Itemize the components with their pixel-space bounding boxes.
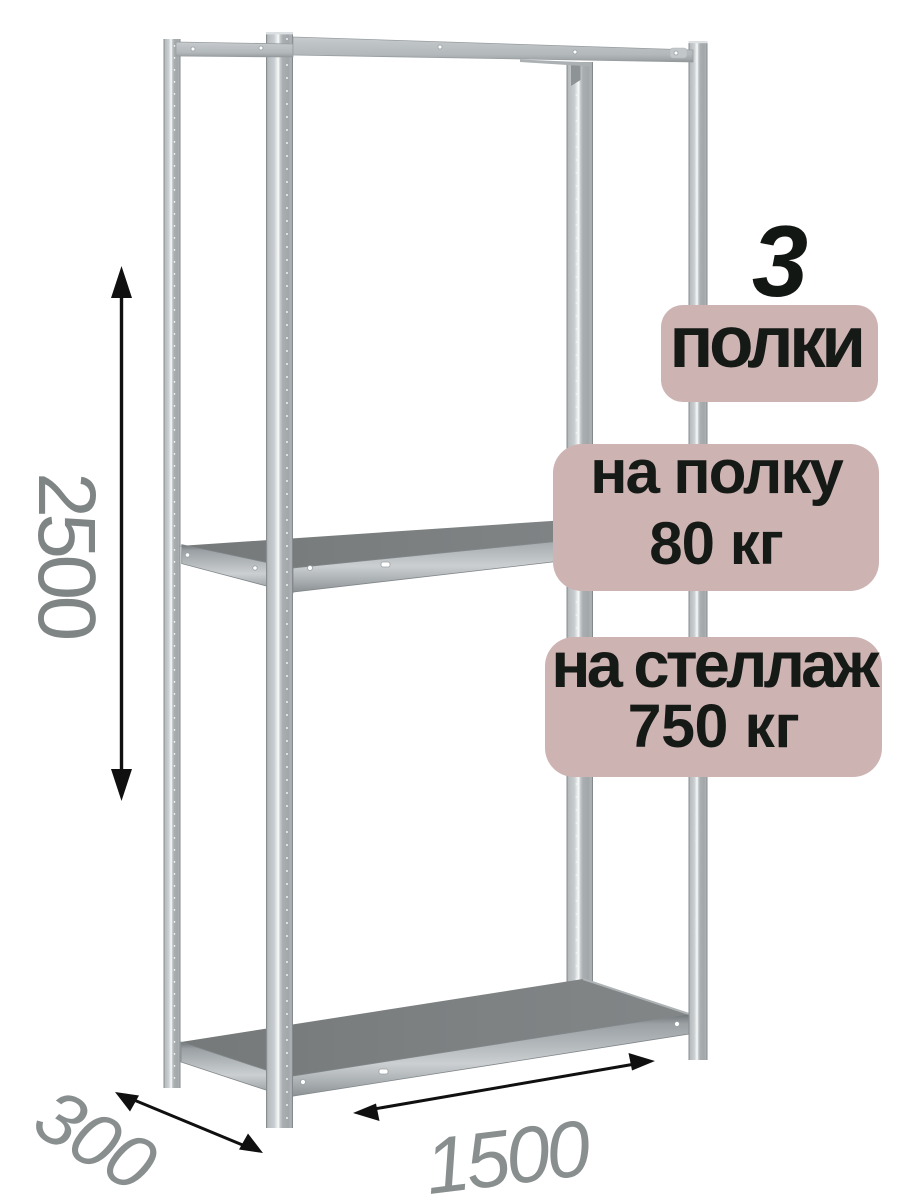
svg-text:2500: 2500 [21, 472, 112, 638]
svg-text:1500: 1500 [420, 1103, 595, 1200]
svg-text:300: 300 [20, 1072, 170, 1200]
